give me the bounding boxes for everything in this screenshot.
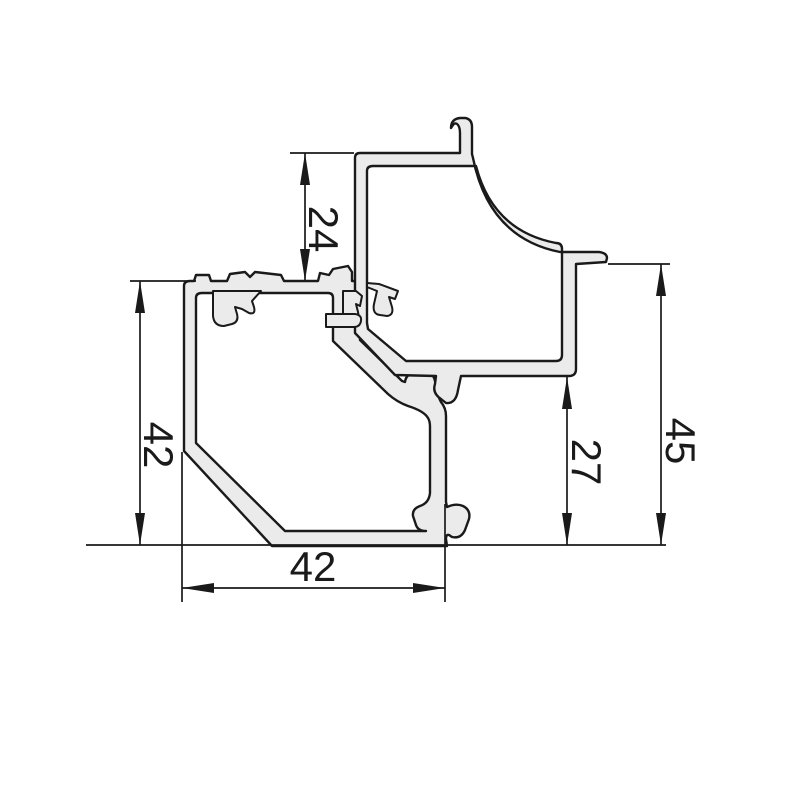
arrowhead-down [562,513,572,545]
upper-profile [355,118,607,403]
clip-hook-upper-cavity [367,283,398,316]
clip-hook-left [213,291,261,326]
dim-text-27: 27 [563,439,610,486]
arrowhead-right [413,583,445,593]
dim-text-45: 45 [657,418,704,465]
arrowhead-down [300,249,310,281]
dim-text-42-bottom: 42 [290,543,337,590]
arrowhead-up [135,281,145,313]
upper-profile-outline [355,118,607,403]
profile-cross-section-drawing: 24 42 27 45 42 [0,0,800,800]
dim-text-42-left: 42 [135,422,182,469]
arrowhead-down [656,513,666,545]
dimension-45: 45 [608,264,704,545]
arrowhead-up [656,264,666,296]
arrowhead-down [135,513,145,545]
dimension-24: 24 [290,153,354,281]
dim-text-24: 24 [300,206,347,253]
clip-shelf [326,314,361,327]
technical-drawing-canvas: 24 42 27 45 42 [0,0,800,800]
dimension-27: 27 [562,377,610,545]
arrowhead-left [182,583,214,593]
arrowhead-up [562,377,572,409]
arrowhead-up [300,153,310,185]
